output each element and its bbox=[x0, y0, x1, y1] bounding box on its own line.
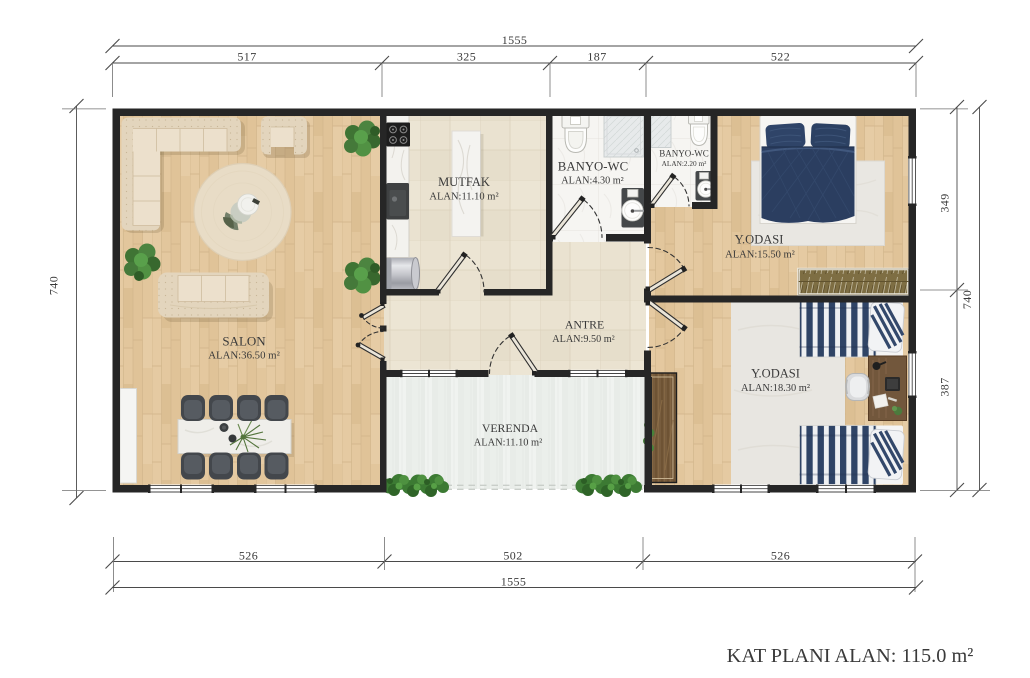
svg-text:526: 526 bbox=[771, 549, 790, 563]
svg-text:325: 325 bbox=[457, 50, 476, 64]
svg-text:ALAN:18.30 m²: ALAN:18.30 m² bbox=[741, 383, 810, 394]
svg-text:BANYO-WC: BANYO-WC bbox=[659, 149, 709, 159]
svg-text:526: 526 bbox=[239, 549, 258, 563]
svg-text:ALAN:11.10 m²: ALAN:11.10 m² bbox=[429, 192, 498, 203]
svg-text:740: 740 bbox=[960, 290, 974, 309]
svg-text:740: 740 bbox=[47, 276, 61, 295]
svg-text:517: 517 bbox=[237, 50, 256, 64]
svg-text:Y.ODASI: Y.ODASI bbox=[751, 367, 800, 381]
svg-text:KAT PLANI ALAN: 115.0 m²: KAT PLANI ALAN: 115.0 m² bbox=[727, 645, 974, 667]
svg-text:ANTRE: ANTRE bbox=[565, 318, 604, 332]
svg-text:1555: 1555 bbox=[501, 575, 527, 589]
svg-text:522: 522 bbox=[771, 50, 790, 64]
svg-text:ALAN:9.50 m²: ALAN:9.50 m² bbox=[552, 334, 614, 345]
svg-text:1555: 1555 bbox=[502, 33, 528, 47]
svg-text:MUTFAK: MUTFAK bbox=[438, 175, 490, 189]
svg-text:387: 387 bbox=[938, 377, 952, 396]
svg-text:ALAN:15.50 m²: ALAN:15.50 m² bbox=[725, 250, 795, 261]
svg-text:ALAN:36.50 m²: ALAN:36.50 m² bbox=[208, 350, 280, 362]
svg-text:BANYO-WC: BANYO-WC bbox=[558, 160, 628, 174]
svg-text:349: 349 bbox=[938, 193, 952, 212]
svg-text:502: 502 bbox=[503, 549, 522, 563]
svg-text:ALAN:2.20 m²: ALAN:2.20 m² bbox=[662, 159, 708, 168]
svg-text:Y.ODASI: Y.ODASI bbox=[735, 233, 784, 247]
svg-text:ALAN:4.30 m²: ALAN:4.30 m² bbox=[561, 176, 623, 187]
svg-text:ALAN:11.10 m²: ALAN:11.10 m² bbox=[474, 438, 543, 449]
svg-text:187: 187 bbox=[587, 50, 606, 64]
svg-text:VERENDA: VERENDA bbox=[482, 421, 539, 435]
svg-text:SALON: SALON bbox=[222, 334, 266, 349]
